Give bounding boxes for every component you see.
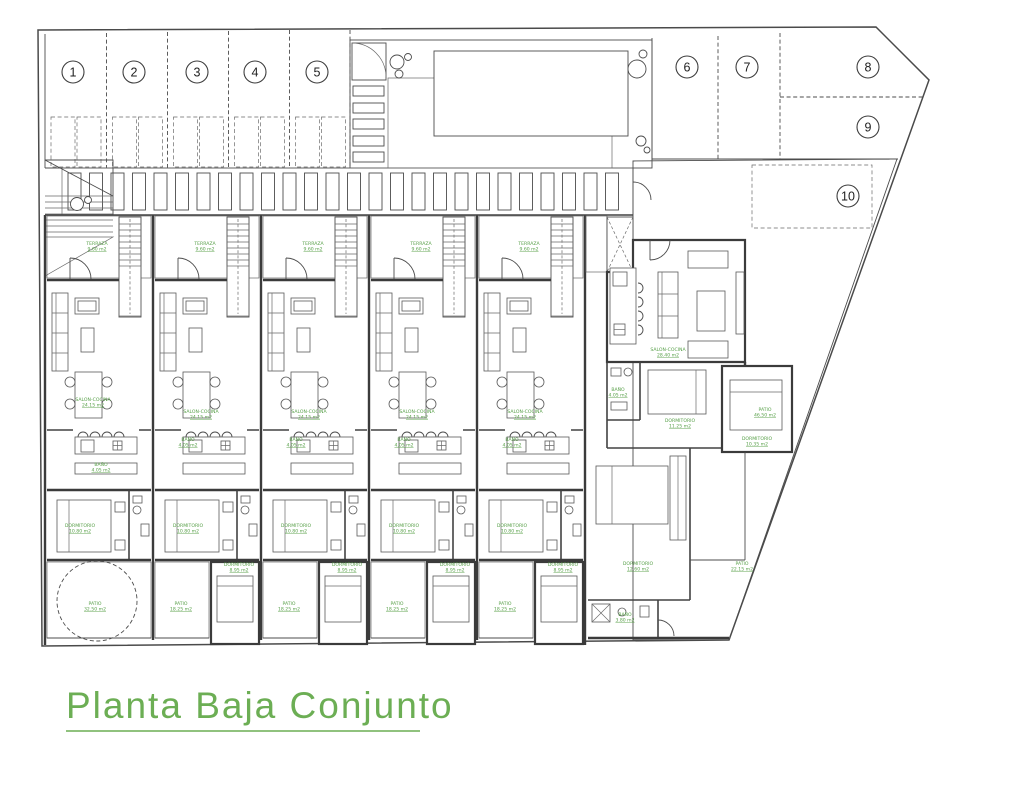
bed [596, 466, 668, 524]
svg-text:3: 3 [194, 66, 201, 80]
bench [353, 136, 384, 146]
svg-text:10: 10 [841, 190, 855, 204]
shrub [71, 198, 84, 211]
room-label: DORMITORIO11.25 m2 [665, 418, 696, 429]
coffee-table [697, 291, 725, 331]
bench [353, 86, 384, 96]
svg-text:5: 5 [314, 66, 321, 80]
room-label: TERRAZA9.60 m2 [517, 241, 540, 252]
room-label: DORMITORIO10.80 m2 [65, 523, 96, 534]
room-label: DORMITORIO10.80 m2 [173, 523, 204, 534]
room-label: DORMITORIO12.60 m2 [623, 561, 654, 572]
parking-number-badge: 8 [857, 56, 879, 78]
room-label: DORMITORIO10.80 m2 [497, 523, 528, 534]
shrub [636, 136, 646, 146]
room-label: DORMITORIO10.80 m2 [389, 523, 420, 534]
room-label: DORMITORIO10.80 m2 [281, 523, 312, 534]
room-label: TERRAZA9.60 m2 [85, 241, 108, 252]
svg-text:9: 9 [865, 121, 872, 135]
parking-number-badge: 7 [736, 56, 758, 78]
parking-number-badge: 2 [123, 61, 145, 83]
bench [353, 103, 384, 113]
shrub [390, 55, 404, 69]
shrub [628, 60, 646, 78]
parking-number-badge: 6 [676, 56, 698, 78]
sofa [688, 251, 728, 268]
parking-number-badge: 9 [857, 116, 879, 138]
room-label: TERRAZA9.60 m2 [409, 241, 432, 252]
sofa [658, 272, 678, 338]
sideboard [736, 272, 744, 334]
floor-plan-drawing: 12345678910 TERRAZA9.60 m2TERRAZA9.60 m2… [0, 0, 1024, 800]
parking-number-badge: 4 [244, 61, 266, 83]
floor-plan-page: 12345678910 TERRAZA9.60 m2TERRAZA9.60 m2… [0, 0, 1024, 800]
room-label: TERRAZA9.60 m2 [301, 241, 324, 252]
stair-void [607, 217, 633, 272]
shrub [395, 70, 403, 78]
shrub [639, 50, 647, 58]
bed [648, 370, 706, 414]
svg-text:6: 6 [684, 61, 691, 75]
swimming-pool [434, 51, 628, 136]
svg-text:8: 8 [865, 61, 872, 75]
svg-text:7: 7 [744, 61, 751, 75]
svg-text:2: 2 [131, 66, 138, 80]
parking-number-badge: 10 [837, 185, 859, 207]
parking-number-badge: 1 [62, 61, 84, 83]
shrub [85, 197, 92, 204]
svg-text:1: 1 [70, 66, 77, 80]
shrub [644, 147, 650, 153]
pool-shed [352, 43, 386, 80]
shrub [405, 54, 412, 61]
parking-number-badge: 5 [306, 61, 328, 83]
bench [353, 119, 384, 129]
bench [353, 152, 384, 162]
svg-text:4: 4 [252, 66, 259, 80]
parking-number-badge: 3 [186, 61, 208, 83]
bed [730, 380, 782, 430]
plan-title: Planta Baja Conjunto [66, 685, 454, 726]
room-label: TERRAZA9.60 m2 [193, 241, 216, 252]
room-label: DORMITORIO10.35 m2 [742, 436, 773, 447]
drawing-title-block: Planta Baja Conjunto [66, 685, 454, 731]
sofa [688, 341, 728, 358]
